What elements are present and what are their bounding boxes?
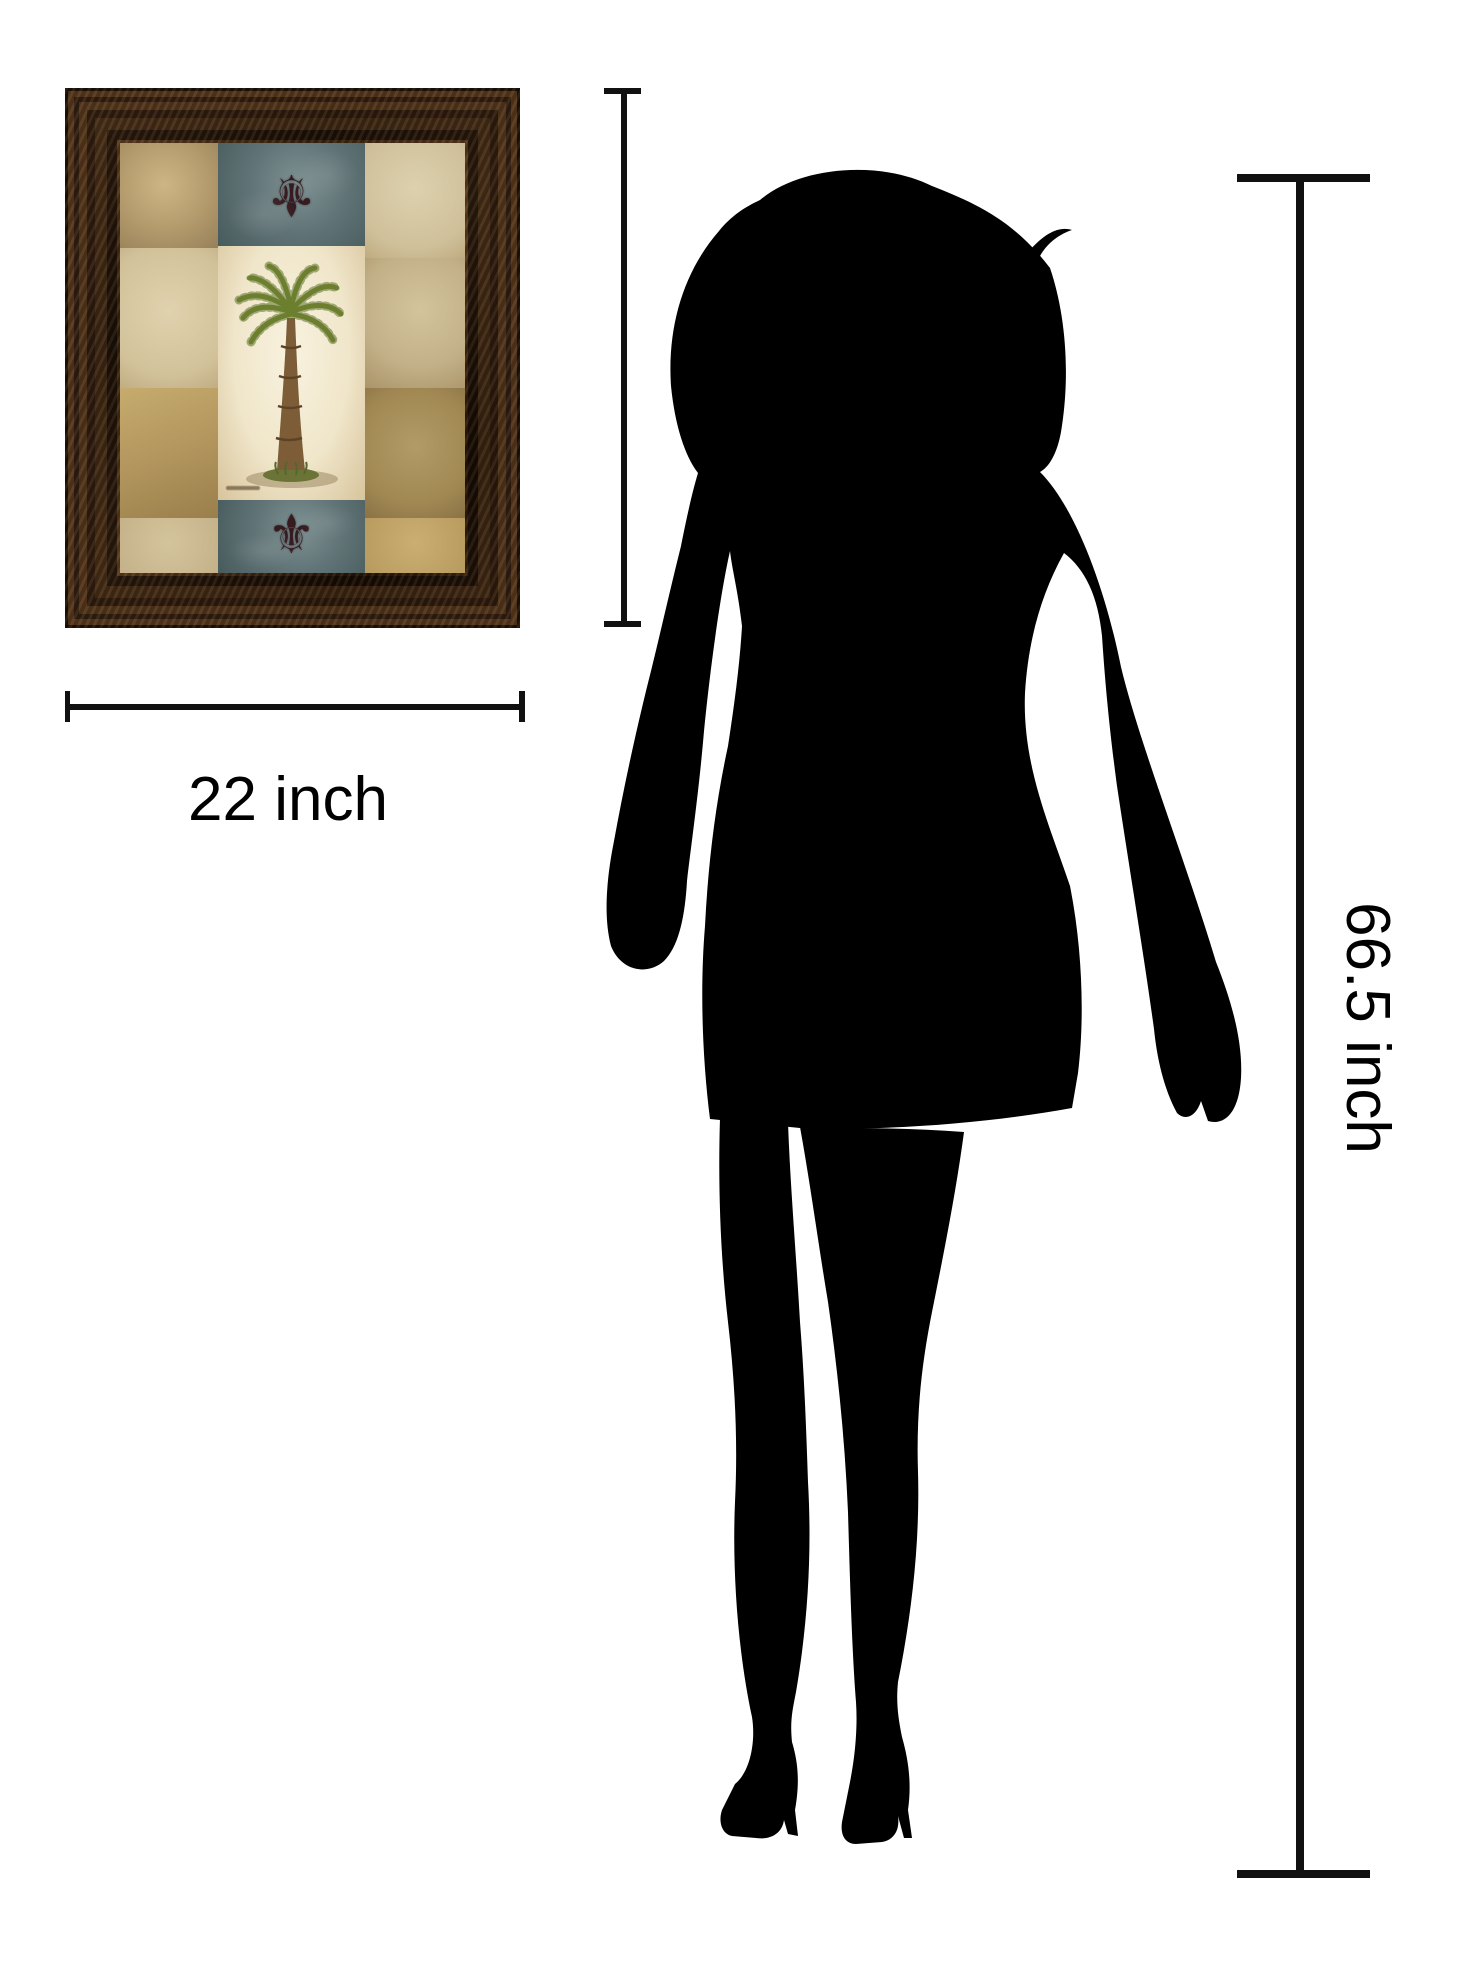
person-dim-line	[1296, 178, 1304, 1874]
size-comparison-diagram: ⚜	[0, 0, 1463, 1975]
fleur-glyph: ⚜	[267, 505, 315, 565]
palm-tree-icon	[218, 246, 365, 500]
artist-signature	[226, 486, 260, 490]
person-height-label: 66.5 inch	[1330, 858, 1404, 1198]
width-dim-right-tick	[519, 691, 525, 722]
texture-patch	[120, 388, 218, 518]
damask-patch	[120, 248, 218, 388]
damask-patch	[365, 143, 465, 258]
artwork-left-column	[120, 143, 218, 573]
slate-panel-bottom: ⚜	[218, 500, 365, 573]
artwork-frame: ⚜	[65, 88, 520, 628]
damask-patch	[365, 388, 465, 518]
fleur-de-lis-icon: ⚜	[218, 508, 365, 562]
damask-patch	[365, 518, 465, 573]
artwork-print: ⚜	[120, 143, 465, 573]
palm-panel	[218, 246, 365, 500]
woman-silhouette	[560, 120, 1270, 1870]
artwork-right-column	[365, 143, 465, 573]
texture-patch	[365, 258, 465, 388]
fleur-de-lis-icon: ⚜	[218, 165, 365, 223]
fleur-glyph: ⚜	[266, 162, 318, 227]
damask-patch	[120, 518, 218, 573]
artwork-center-column: ⚜	[218, 143, 365, 573]
width-dim-line	[67, 704, 522, 710]
damask-patch	[120, 143, 218, 248]
artwork-width-label: 22 inch	[138, 765, 438, 835]
person-dim-bottom-tick	[1237, 1870, 1370, 1878]
slate-panel-top: ⚜	[218, 143, 365, 246]
